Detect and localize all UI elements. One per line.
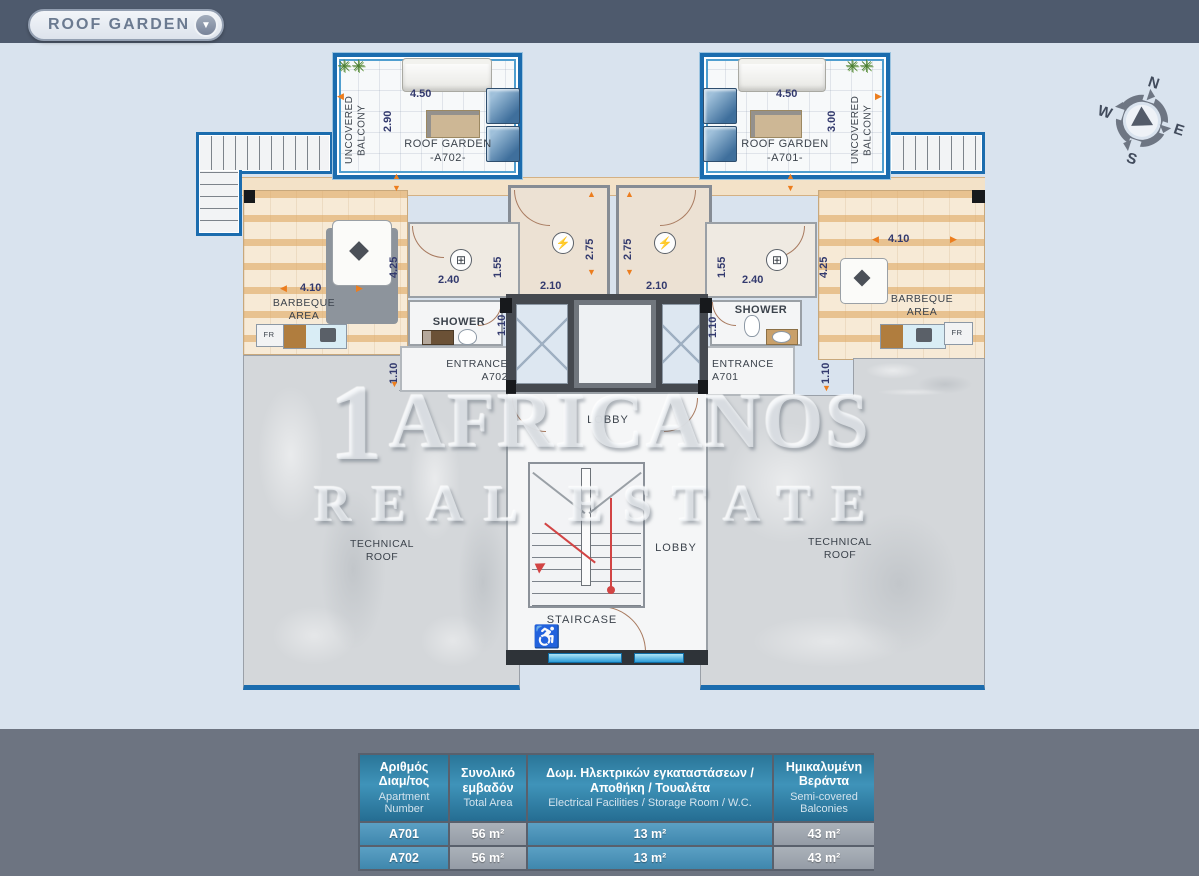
dimension: 2.10 — [646, 280, 667, 292]
dimension: 2.10 — [540, 280, 561, 292]
dimension-arrow: ▲ — [625, 190, 634, 199]
table-header-apartment: Αριθμός Διαμ/τος Apartment Number — [360, 755, 448, 821]
dimension: 2.40 — [438, 274, 459, 286]
header-english: Semi-covered Balconies — [777, 791, 871, 816]
dimension-arrow: ▼ — [390, 380, 399, 389]
table-header-semi-covered: Ημικαλυμένη Βεράντα Semi-covered Balconi… — [774, 755, 874, 821]
stair-winder-line — [589, 472, 642, 514]
dimension: 4.50 — [410, 88, 431, 100]
wheelchair-icon: ♿ — [533, 626, 560, 648]
vent-icon: ⊞ — [766, 249, 788, 271]
cell-total-area: 56 m² — [450, 847, 526, 869]
technical-line1: TECHNICAL — [804, 536, 876, 549]
chevron-down-icon[interactable]: ▼ — [194, 13, 218, 37]
coffee-table — [426, 110, 480, 138]
dimension-arrow: ▼ — [392, 184, 401, 193]
dimension-arrow: ▲ — [587, 190, 596, 199]
toilet — [458, 329, 477, 345]
stair-winder-line — [533, 472, 586, 514]
uncovered-balcony-label-right: UNCOVERED BALCONY — [850, 86, 875, 174]
stair-path — [610, 498, 612, 588]
column — [698, 380, 708, 394]
electric-icon: ⚡ — [552, 232, 574, 254]
table-header-electrical: Δωμ. Ηλεκτρικών εγκαταστάσεων / Αποθήκη … — [528, 755, 772, 821]
header-english: Electrical Facilities / Storage Room / W… — [548, 797, 752, 810]
floor-selector-dropdown[interactable]: ROOF GARDEN ▼ — [28, 9, 224, 41]
dimension: 1.55 — [716, 246, 728, 278]
window — [634, 653, 684, 663]
dimension-arrow: ▼ — [822, 384, 831, 393]
roof-garden-label-right: ROOF GARDEN -A701- — [737, 138, 833, 166]
roof-garden-line2: -A701- — [737, 152, 833, 166]
dimension-arrow: ▶ — [875, 92, 882, 101]
bbq-grill — [916, 328, 932, 342]
technical-line1: TECHNICAL — [346, 538, 418, 551]
external-stairs-top-right — [888, 132, 985, 174]
dimension: 4.50 — [776, 88, 797, 100]
dimension-arrow: ◀ — [337, 92, 344, 101]
technical-roof-left — [243, 355, 400, 690]
barbeque-line2: AREA — [262, 310, 346, 323]
elevator-shaft-right — [662, 304, 700, 384]
header-greek: Δωμ. Ηλεκτρικών εγκαταστάσεων / Αποθήκη … — [531, 766, 769, 795]
dimension: 4.10 — [300, 282, 321, 294]
dimension: 1.10 — [496, 306, 508, 336]
compass-s: S — [1124, 149, 1139, 168]
entrance-line2: A702 — [438, 371, 508, 384]
header-greek: Ημικαλυμένη Βεράντα — [777, 760, 871, 789]
dimension-arrow: ▲ — [786, 172, 795, 181]
apartment-table: Αριθμός Διαμ/τος Apartment Number Συνολι… — [358, 753, 874, 871]
dimension: 2.75 — [622, 226, 634, 260]
dimension: 2.90 — [382, 96, 394, 132]
shower-label-right: SHOWER — [730, 304, 792, 318]
header-english: Apartment Number — [363, 791, 445, 816]
external-stairs-top-left — [196, 132, 333, 174]
stair-divider — [581, 468, 591, 586]
column — [972, 190, 985, 203]
shower-label-left: SHOWER — [428, 316, 490, 330]
barbeque-line2: AREA — [880, 306, 964, 319]
uncovered-balcony-label-left: UNCOVERED BALCONY — [344, 88, 369, 172]
vanity — [422, 330, 454, 345]
dimension-arrow: ▼ — [587, 268, 596, 277]
elevator-shaft-left — [516, 304, 568, 384]
lobby-label-lower: LOBBY — [650, 542, 702, 556]
entrance-label-right: ENTRANCE A701 — [712, 358, 782, 384]
technical-line2: ROOF — [804, 549, 876, 562]
sun-lounger — [486, 88, 520, 124]
roof-garden-label-left: ROOF GARDEN -A702- — [400, 138, 496, 166]
sink — [772, 331, 791, 343]
dimension: 1.55 — [492, 246, 504, 278]
dimension-arrow: ◀ — [280, 284, 287, 293]
staircase-box — [528, 462, 645, 608]
cell-semi-covered: 43 m² — [774, 823, 874, 845]
dimension-arrow: ▶ — [356, 284, 363, 293]
technical-line2: ROOF — [346, 551, 418, 564]
technical-roof-label-right: TECHNICAL ROOF — [804, 536, 876, 562]
window — [548, 653, 622, 663]
barbeque-label-left: BARBEQUE AREA — [262, 297, 346, 323]
dimension: 3.00 — [826, 96, 838, 132]
compass-n: N — [1146, 73, 1162, 93]
barbeque-line1: BARBEQUE — [262, 297, 346, 310]
dimension: 1.10 — [820, 354, 832, 384]
plant-icon: ✳✳ — [845, 58, 874, 75]
elevator-cab — [574, 300, 656, 388]
bbq-counter — [283, 324, 347, 349]
table-header-total-area: Συνολικό εμβαδόν Total Area — [450, 755, 526, 821]
dimension: 4.25 — [818, 244, 830, 278]
vent-icon: ⊞ — [450, 249, 472, 271]
technical-roof-right-2 — [853, 358, 985, 398]
header-greek: Αριθμός Διαμ/τος — [363, 760, 445, 789]
cell-apartment: A701 — [360, 823, 448, 845]
plant-icon: ✳✳ — [337, 58, 366, 75]
cell-electrical: 13 m² — [528, 823, 772, 845]
dimension-arrow: ◀ — [872, 235, 879, 244]
dimension: 2.75 — [584, 226, 596, 260]
barbeque-label-right: BARBEQUE AREA — [880, 293, 964, 319]
coffee-table — [750, 110, 802, 138]
dimension-arrow: ▶ — [950, 235, 957, 244]
roof-garden-line1: ROOF GARDEN — [400, 138, 496, 152]
sun-lounger — [703, 88, 737, 124]
header-english: Total Area — [464, 797, 513, 810]
entrance-line1: ENTRANCE — [712, 358, 782, 371]
dimension: 1.10 — [707, 308, 719, 338]
toilet — [744, 315, 760, 337]
barbeque-line1: BARBEQUE — [880, 293, 964, 306]
sofa — [738, 58, 826, 92]
fr-label-right: FR — [946, 328, 968, 337]
column — [244, 190, 255, 203]
header-greek: Συνολικό εμβαδόν — [453, 766, 523, 795]
floor-plan-page: ✳✳ ✳✳ ⊞ ⊞ ⚡ ⚡ UNCOVERED BALCONY UNCOVERE… — [0, 0, 1199, 876]
entrance-line2: A701 — [712, 371, 782, 384]
fr-label-left: FR — [258, 330, 280, 339]
stair-path-dot — [607, 586, 615, 594]
electric-icon: ⚡ — [654, 232, 676, 254]
dimension: 4.10 — [888, 233, 909, 245]
cell-semi-covered: 43 m² — [774, 847, 874, 869]
sun-lounger — [703, 126, 737, 162]
cell-electrical: 13 m² — [528, 847, 772, 869]
dimension: 2.40 — [742, 274, 763, 286]
dimension-arrow: ▲ — [392, 172, 401, 181]
roof-garden-line2: -A702- — [400, 152, 496, 166]
sofa — [402, 58, 492, 92]
compass-e: E — [1172, 121, 1187, 140]
floor-selector-label: ROOF GARDEN — [48, 16, 190, 34]
cell-apartment: A702 — [360, 847, 448, 869]
bbq-grill — [320, 328, 336, 342]
lobby-label-upper: LOBBY — [580, 414, 636, 428]
entrance-line1: ENTRANCE — [438, 358, 508, 371]
roof-garden-line1: ROOF GARDEN — [737, 138, 833, 152]
bbq-counter — [880, 324, 946, 349]
external-stairs-left-leg — [196, 170, 242, 236]
dimension-arrow: ▼ — [625, 268, 634, 277]
dimension: 4.25 — [388, 244, 400, 278]
dimension-arrow: ▼ — [786, 184, 795, 193]
compass-w: W — [1095, 102, 1114, 123]
entrance-label-left: ENTRANCE A702 — [438, 358, 508, 384]
cell-total-area: 56 m² — [450, 823, 526, 845]
compass-rose: N E S W — [1085, 65, 1198, 183]
apartment-table-grid: Αριθμός Διαμ/τος Apartment Number Συνολι… — [358, 753, 874, 871]
technical-roof-label-left: TECHNICAL ROOF — [346, 538, 418, 564]
